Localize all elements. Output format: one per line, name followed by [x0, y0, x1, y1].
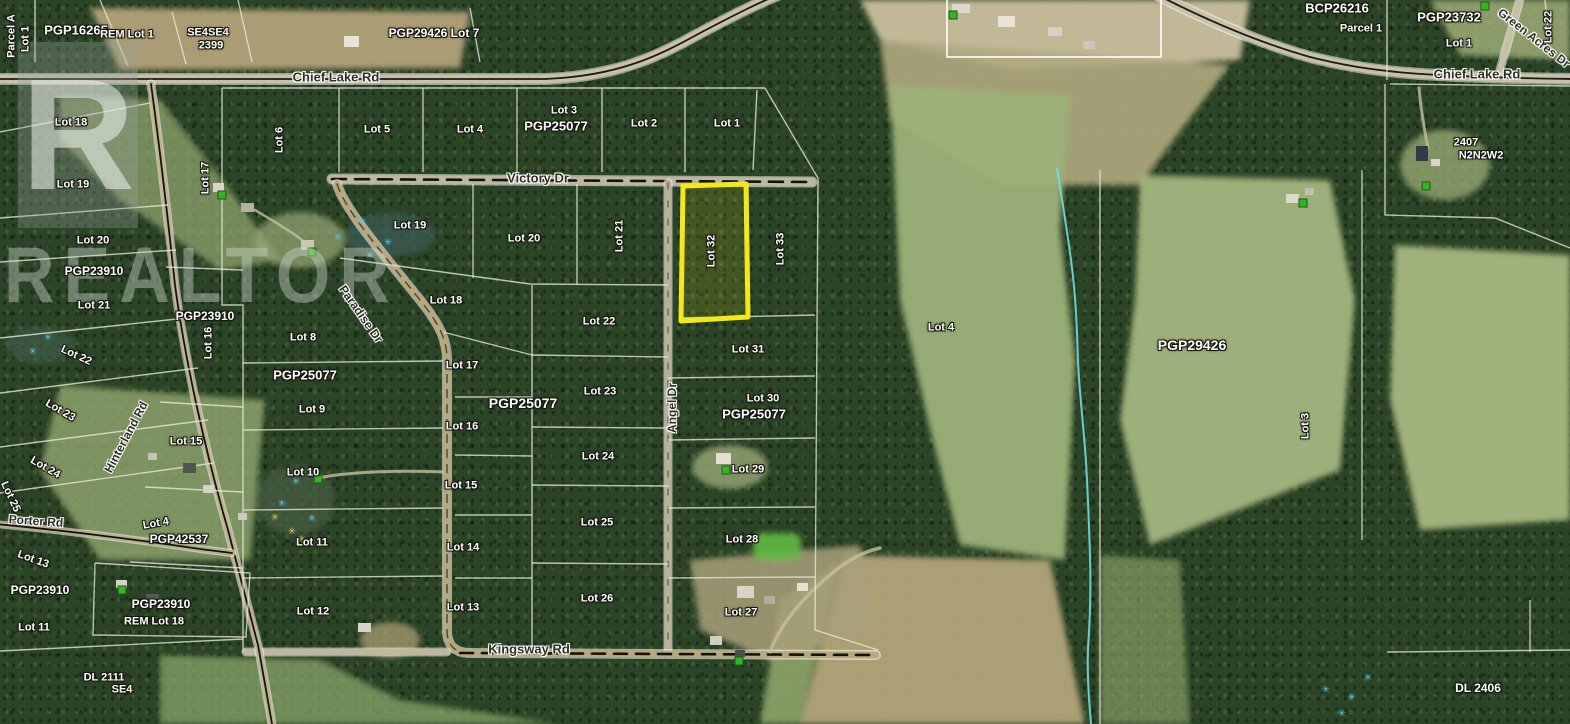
- property-pin-icon[interactable]: [315, 476, 322, 483]
- building: [998, 16, 1015, 27]
- building: [764, 596, 775, 604]
- fields-layer: [5, 0, 1570, 724]
- field-patch: [90, 8, 470, 70]
- building: [735, 650, 745, 657]
- building: [203, 485, 214, 493]
- clearing: [692, 445, 768, 489]
- field-patch: [1390, 245, 1570, 530]
- field-patch: [890, 85, 1075, 560]
- map-canvas[interactable]: ✳✳✳✳✳✳✳✳✳✳✳✳✳✳✳✳✳✳ Parcel ALot 1PGP16265…: [0, 0, 1570, 724]
- property-pin-icon[interactable]: [219, 192, 226, 199]
- property-pin-icon[interactable]: [119, 587, 126, 594]
- field-patch: [160, 655, 560, 724]
- property-pin-icon[interactable]: [1423, 183, 1430, 190]
- building: [1431, 159, 1440, 166]
- building: [238, 513, 247, 520]
- building: [1305, 188, 1314, 195]
- marsh-area: [255, 465, 335, 535]
- field-patch: [1100, 555, 1190, 724]
- building: [710, 636, 722, 645]
- clearing: [1400, 130, 1490, 200]
- map-graphics: [0, 0, 1570, 724]
- property-pin-icon[interactable]: [309, 249, 316, 256]
- building: [146, 594, 159, 603]
- property-pin-icon[interactable]: [1300, 200, 1307, 207]
- road-victory: [332, 179, 812, 182]
- building: [1083, 41, 1095, 49]
- building: [344, 36, 359, 47]
- field-patch: [1430, 0, 1570, 60]
- building: [1286, 194, 1299, 203]
- building: [148, 453, 157, 460]
- property-pin-icon[interactable]: [723, 467, 730, 474]
- building: [1048, 27, 1062, 36]
- highlighted-parcel[interactable]: [681, 184, 748, 321]
- marsh-area: [5, 327, 75, 363]
- field-patch: [1120, 175, 1355, 545]
- property-pin-icon[interactable]: [736, 658, 743, 665]
- building: [1416, 146, 1428, 161]
- building: [716, 453, 731, 464]
- building: [183, 463, 196, 473]
- lawn-patch: [753, 533, 801, 560]
- building: [358, 623, 371, 632]
- property-pin-icon[interactable]: [950, 12, 957, 19]
- property-pin-icon[interactable]: [1482, 3, 1489, 10]
- building: [797, 583, 808, 591]
- building: [737, 586, 754, 598]
- building: [241, 203, 254, 212]
